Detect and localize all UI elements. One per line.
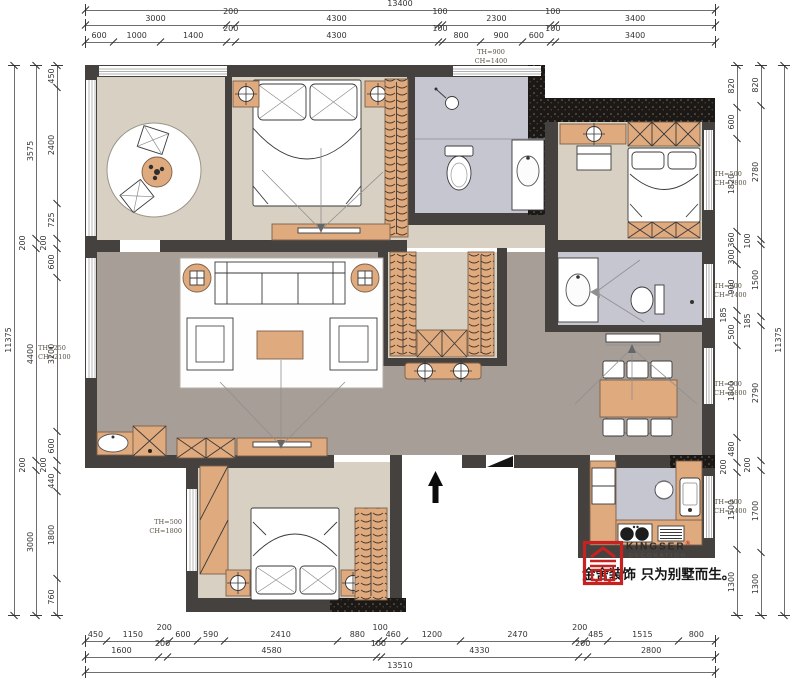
floor-drain-icon xyxy=(690,300,694,304)
bottom-bedroom-window xyxy=(187,489,197,571)
annotation-right-window-2: TH=900 CH=1400 xyxy=(714,282,736,300)
balcony-top-window xyxy=(99,66,227,76)
desk xyxy=(577,146,611,170)
balcony-left-window xyxy=(86,80,96,236)
annotation-right-window-3: TH=500 CH=1800 xyxy=(714,380,736,398)
toilet-icon xyxy=(447,156,471,190)
second-bathroom-window xyxy=(704,264,713,318)
burner xyxy=(621,528,634,541)
corridor-floor xyxy=(407,225,545,248)
dining-window xyxy=(704,348,713,404)
dining-chair xyxy=(627,361,648,378)
living-left-window xyxy=(86,258,96,378)
toilet-tank xyxy=(655,285,664,314)
toilet-icon xyxy=(631,287,653,313)
sofa xyxy=(215,262,345,304)
cabinet xyxy=(200,466,228,574)
dining-chair xyxy=(651,419,672,436)
dining-table xyxy=(600,380,677,417)
annotation-top-window: TH=900 CH=1400 xyxy=(462,48,520,66)
coffee-table xyxy=(257,331,303,359)
pillow xyxy=(632,152,664,169)
annotation-bottom-bedroom-window: TH=500 CH=1800 xyxy=(146,518,182,536)
kitchen-window xyxy=(704,476,713,538)
toilet-tank xyxy=(445,146,473,156)
tv xyxy=(298,228,360,233)
sideboard xyxy=(606,334,660,342)
dining-chair xyxy=(603,361,624,378)
dining-chair xyxy=(603,419,624,436)
annotation-left-window: TH=250 CH=2100 xyxy=(38,344,78,362)
kingser-logo: KINGSER® DECORATION 金舍装饰 只为别墅而生。 xyxy=(582,540,734,632)
balcony-furniture xyxy=(107,123,201,217)
kingser-seal-icon xyxy=(582,540,624,586)
registered-mark: ® xyxy=(686,541,690,547)
basin-icon xyxy=(517,156,539,186)
annotation-right-window-1: TH=500 CH=1800 xyxy=(714,170,736,188)
dining-chair xyxy=(651,361,672,378)
entry-arrow-icon xyxy=(428,471,443,486)
shower-head-icon xyxy=(446,97,459,110)
dining-chair xyxy=(627,419,648,436)
burner xyxy=(636,528,649,541)
new-wall xyxy=(545,98,715,122)
bathroom-top-window xyxy=(453,66,541,76)
pillow xyxy=(668,152,696,169)
annotation-right-window-4: TH=900 CH=1400 xyxy=(714,498,736,516)
right-bedroom-window xyxy=(704,130,713,210)
floorplan-canvas: 1340030002004300100230010034006001000140… xyxy=(0,0,800,684)
entry-arrow-shaft xyxy=(433,486,439,503)
